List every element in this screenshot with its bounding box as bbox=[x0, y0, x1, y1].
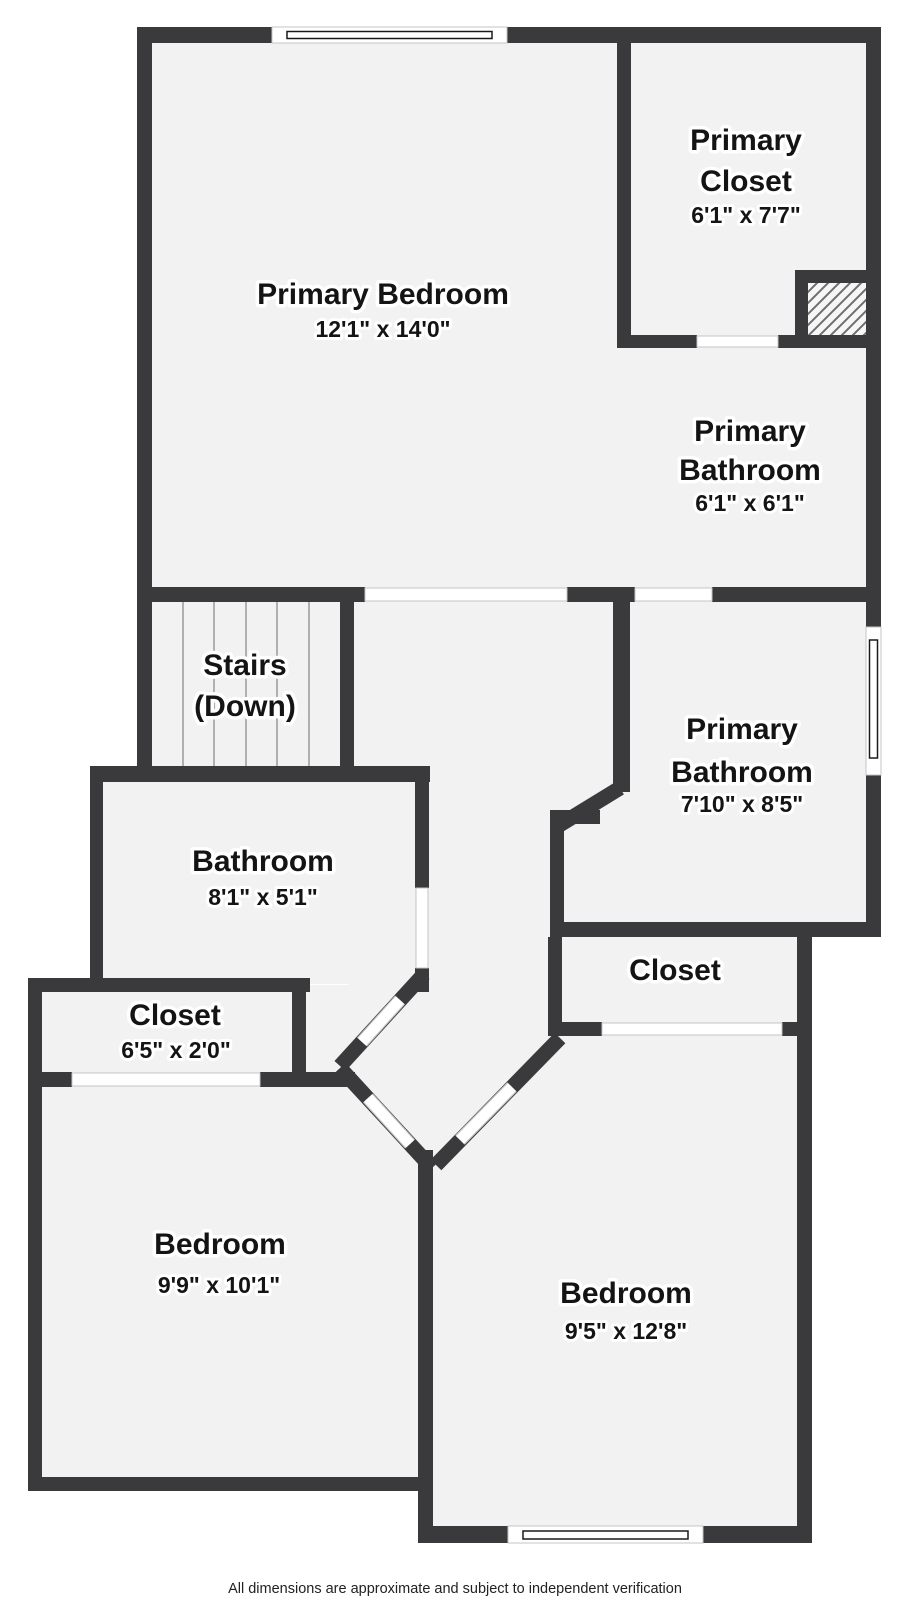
wall-segment bbox=[90, 766, 430, 782]
room-label-primary-bathroom-lower-line2: Bathroom bbox=[671, 756, 813, 789]
wall-segment bbox=[292, 992, 306, 1072]
wall-segment bbox=[28, 1477, 433, 1491]
hatched-chase bbox=[808, 283, 866, 335]
wall-segment bbox=[340, 600, 354, 768]
room-label-stairs-line1: Stairs bbox=[203, 649, 286, 682]
room-dims-closet-left: 6'5" x 2'0" bbox=[121, 1037, 231, 1063]
wall-segment bbox=[866, 27, 881, 627]
door-opening bbox=[72, 1073, 260, 1086]
door-opening bbox=[635, 588, 712, 601]
room-label-primary-closet-line1: Primary bbox=[690, 124, 802, 157]
wall-segment bbox=[550, 922, 881, 937]
floor-area bbox=[97, 772, 422, 984]
wall-segment bbox=[137, 587, 365, 602]
window-glazing bbox=[287, 32, 492, 39]
wall-segment bbox=[137, 27, 152, 782]
wall-segment bbox=[548, 1022, 602, 1036]
floor-plan-page: Primary Bedroom 12'1" x 14'0" Primary Cl… bbox=[0, 0, 910, 1600]
wall-segment bbox=[550, 822, 564, 937]
wall-segment bbox=[703, 1526, 810, 1543]
door-opening bbox=[602, 1023, 782, 1035]
room-dims-bedroom-right: 9'5" x 12'8" bbox=[565, 1318, 687, 1344]
wall-segment bbox=[567, 587, 635, 602]
disclaimer-text: All dimensions are approximate and subje… bbox=[228, 1581, 682, 1597]
wall-segment bbox=[617, 27, 631, 348]
wall-segment bbox=[778, 335, 881, 348]
room-label-primary-bedroom: Primary Bedroom bbox=[257, 278, 509, 311]
room-label-primary-bathroom-upper-line2: Bathroom bbox=[679, 454, 821, 487]
wall-segment bbox=[795, 270, 808, 348]
room-label-bedroom-left: Bedroom bbox=[154, 1228, 286, 1261]
wall-segment bbox=[418, 1150, 433, 1543]
wall-segment bbox=[866, 775, 881, 937]
wall-segment bbox=[418, 1526, 508, 1543]
room-label-primary-bathroom-lower-line1: Primary bbox=[686, 713, 798, 746]
wall-segment bbox=[797, 922, 812, 1543]
room-label-closet-right: Closet bbox=[629, 954, 721, 987]
hatch-lines bbox=[808, 283, 866, 335]
door-opening bbox=[365, 588, 567, 601]
room-label-bathroom: Bathroom bbox=[192, 845, 334, 878]
wall-segment bbox=[548, 937, 562, 1036]
room-dims-primary-closet: 6'1" x 7'7" bbox=[691, 202, 801, 228]
room-dims-primary-bathroom-lower: 7'10" x 8'5" bbox=[681, 791, 803, 817]
room-dims-bathroom: 8'1" x 5'1" bbox=[208, 884, 318, 910]
window-glazing bbox=[870, 640, 878, 758]
door-opening bbox=[416, 888, 428, 968]
room-dims-bedroom-left: 9'9" x 10'1" bbox=[158, 1272, 280, 1298]
wall-segment bbox=[28, 978, 310, 992]
room-dims-primary-bedroom: 12'1" x 14'0" bbox=[315, 316, 450, 342]
wall-segment bbox=[28, 978, 42, 1490]
wall-segment bbox=[28, 1072, 72, 1087]
wall-segment bbox=[415, 782, 429, 888]
window-glazing bbox=[523, 1531, 688, 1539]
wall-segment bbox=[712, 587, 881, 602]
wall-segment bbox=[137, 27, 272, 43]
room-dims-primary-bathroom-upper: 6'1" x 6'1" bbox=[695, 490, 805, 516]
wall-segment bbox=[507, 27, 881, 43]
floor-plan: Primary Bedroom 12'1" x 14'0" Primary Cl… bbox=[0, 0, 910, 1600]
room-label-closet-left: Closet bbox=[129, 999, 221, 1032]
room-label-primary-bathroom-upper-line1: Primary bbox=[694, 415, 806, 448]
wall-segment bbox=[617, 335, 697, 348]
room-label-stairs-line2: (Down) bbox=[194, 690, 296, 723]
door-opening bbox=[697, 336, 778, 347]
wall-segment bbox=[90, 766, 103, 992]
room-label-primary-closet-line2: Closet bbox=[700, 165, 792, 198]
wall-segment bbox=[613, 600, 630, 792]
room-label-bedroom-right: Bedroom bbox=[560, 1277, 692, 1310]
